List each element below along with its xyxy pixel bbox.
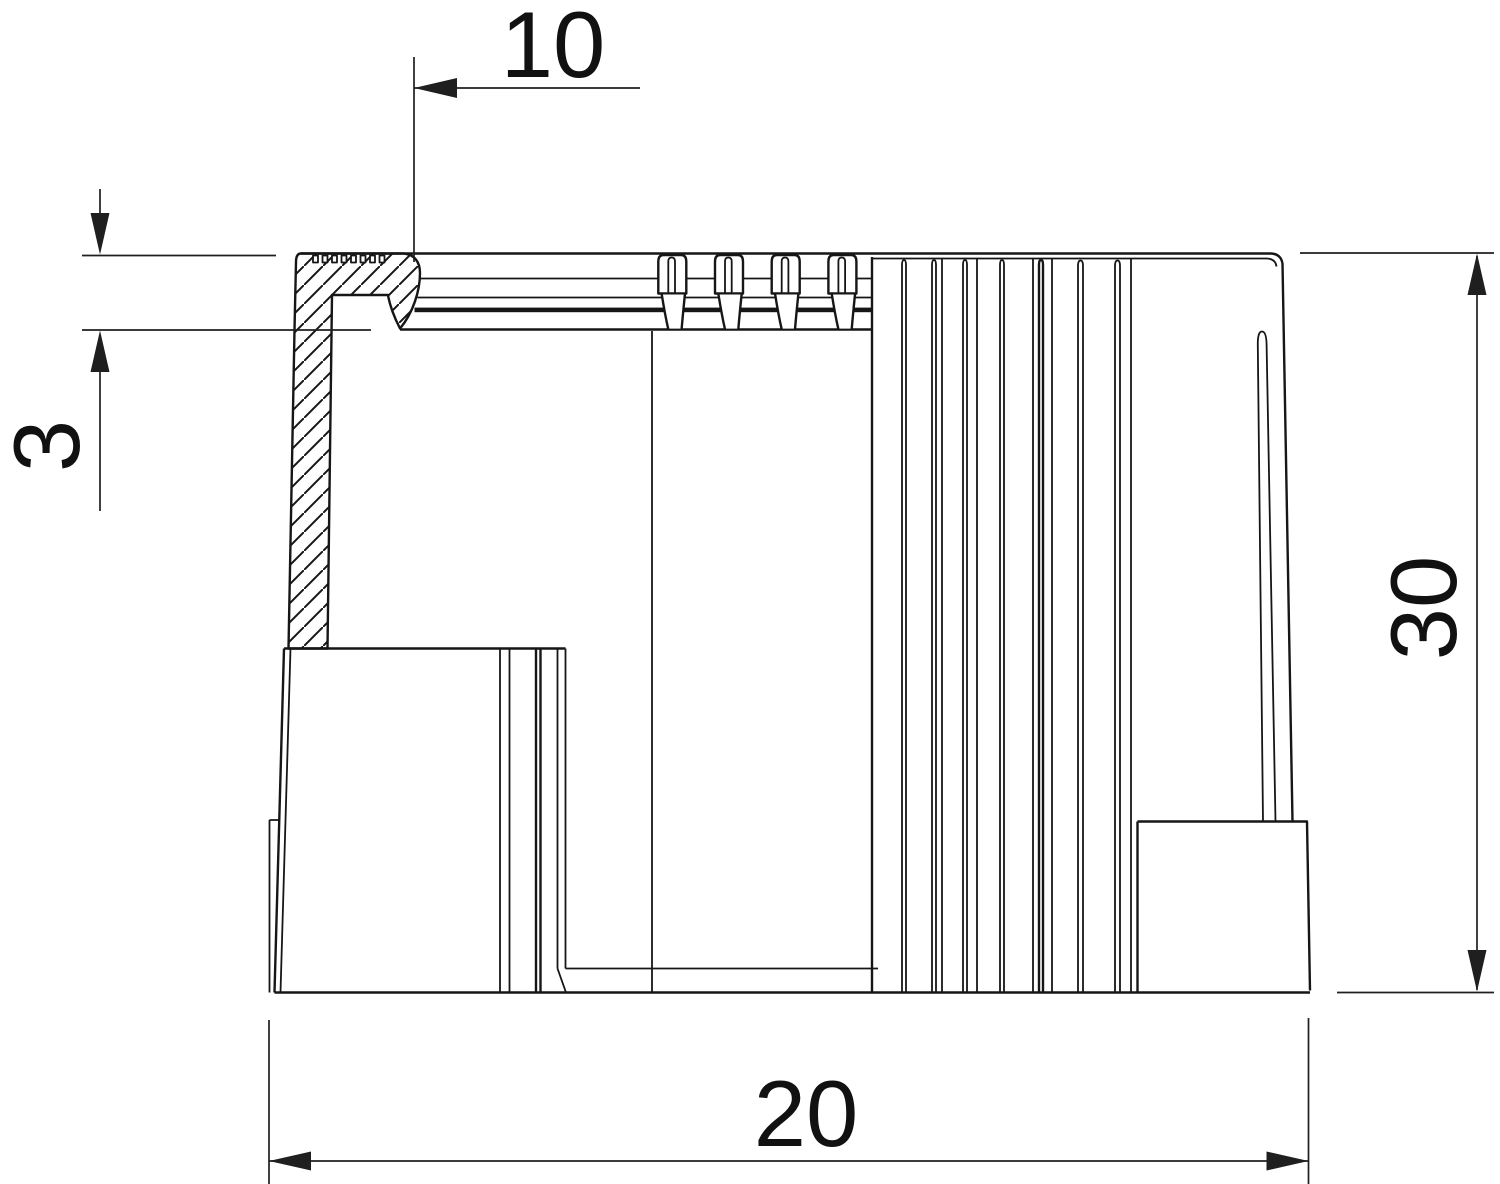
- technical-drawing: 10 3 30 20: [0, 0, 1500, 1184]
- dimension-label-20: 20: [754, 1061, 859, 1166]
- dimension-label-30: 30: [1371, 556, 1476, 661]
- dimension-label-10: 10: [501, 0, 606, 97]
- dark-groove-band: [415, 308, 873, 313]
- paper-background: [0, 0, 1500, 1184]
- drawing-canvas: 10 3 30 20: [0, 0, 1500, 1184]
- dimension-label-3: 3: [0, 420, 99, 472]
